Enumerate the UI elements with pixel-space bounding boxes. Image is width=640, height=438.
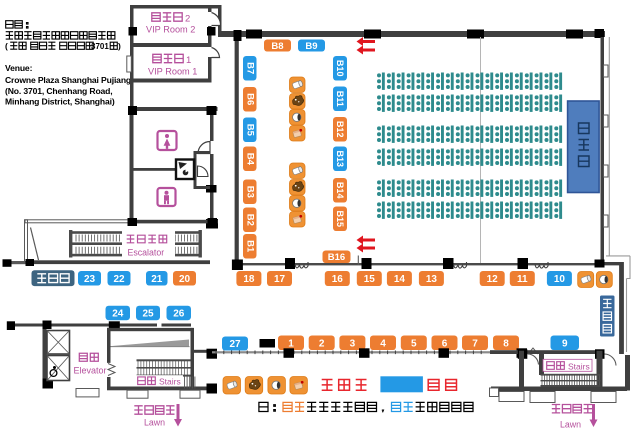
svg-text:Lawn: Lawn — [144, 418, 165, 428]
svg-text:B6: B6 — [244, 93, 255, 105]
svg-text:Elevator: Elevator — [74, 366, 107, 376]
svg-text:17: 17 — [274, 274, 286, 285]
svg-text:15: 15 — [364, 274, 376, 285]
svg-text:B10: B10 — [335, 60, 345, 77]
svg-text:5: 5 — [411, 338, 417, 349]
svg-text:B16: B16 — [328, 252, 345, 263]
svg-text:Escalator: Escalator — [128, 248, 165, 258]
svg-text:Lawn: Lawn — [560, 420, 581, 430]
svg-text:B3: B3 — [244, 186, 255, 198]
svg-text:2: 2 — [319, 338, 325, 349]
svg-text:B14: B14 — [335, 182, 345, 199]
svg-text:(No. 3701, Chenhang Road,: (No. 3701, Chenhang Road, — [5, 86, 113, 96]
svg-text:Minhang District, Shanghai): Minhang District, Shanghai) — [5, 97, 115, 107]
svg-text:3: 3 — [350, 338, 356, 349]
svg-text:Stairs: Stairs — [159, 376, 181, 386]
svg-text:1: 1 — [186, 55, 191, 66]
svg-text:27: 27 — [229, 339, 241, 350]
svg-text:2: 2 — [185, 14, 190, 25]
svg-text:): ) — [118, 41, 121, 51]
svg-text:11: 11 — [517, 274, 528, 285]
svg-text:16: 16 — [332, 274, 344, 285]
svg-text:1: 1 — [288, 338, 294, 349]
svg-text:(: ( — [5, 41, 8, 51]
svg-text:20: 20 — [179, 274, 191, 285]
svg-text:12: 12 — [487, 274, 499, 285]
svg-text:7: 7 — [472, 338, 478, 349]
svg-text:22: 22 — [113, 274, 125, 285]
svg-text:Venue:: Venue: — [5, 63, 33, 73]
svg-text:25: 25 — [142, 309, 154, 320]
svg-text:23: 23 — [84, 274, 96, 285]
svg-text:8: 8 — [503, 338, 509, 349]
svg-text:B11: B11 — [335, 91, 345, 107]
svg-text:B1: B1 — [244, 240, 255, 253]
svg-text:Crowne Plaza Shanghai Pujiang: Crowne Plaza Shanghai Pujiang — [5, 75, 131, 85]
svg-text:14: 14 — [394, 274, 406, 285]
svg-text:B15: B15 — [335, 211, 345, 228]
svg-text:18: 18 — [243, 274, 255, 285]
svg-text:13: 13 — [426, 274, 438, 285]
svg-text:VIP Room 1: VIP Room 1 — [148, 67, 197, 77]
svg-text:21: 21 — [151, 274, 163, 285]
svg-text:24: 24 — [112, 309, 124, 320]
svg-text:B5: B5 — [244, 124, 255, 137]
svg-text:B4: B4 — [244, 153, 255, 166]
svg-text:9: 9 — [562, 338, 568, 349]
svg-text:B13: B13 — [335, 151, 345, 168]
svg-text:B7: B7 — [244, 62, 255, 74]
svg-text:3701: 3701 — [91, 42, 109, 51]
svg-text:Stairs: Stairs — [568, 361, 590, 371]
svg-text:B8: B8 — [271, 41, 283, 52]
svg-text:B12: B12 — [335, 121, 345, 138]
svg-text:6: 6 — [442, 338, 448, 349]
svg-text:10: 10 — [554, 274, 566, 285]
svg-text:VIP Room 2: VIP Room 2 — [146, 25, 195, 35]
svg-text:4: 4 — [380, 338, 386, 349]
svg-text:B2: B2 — [244, 214, 255, 226]
svg-text:26: 26 — [173, 309, 185, 320]
svg-text:B9: B9 — [305, 41, 317, 52]
